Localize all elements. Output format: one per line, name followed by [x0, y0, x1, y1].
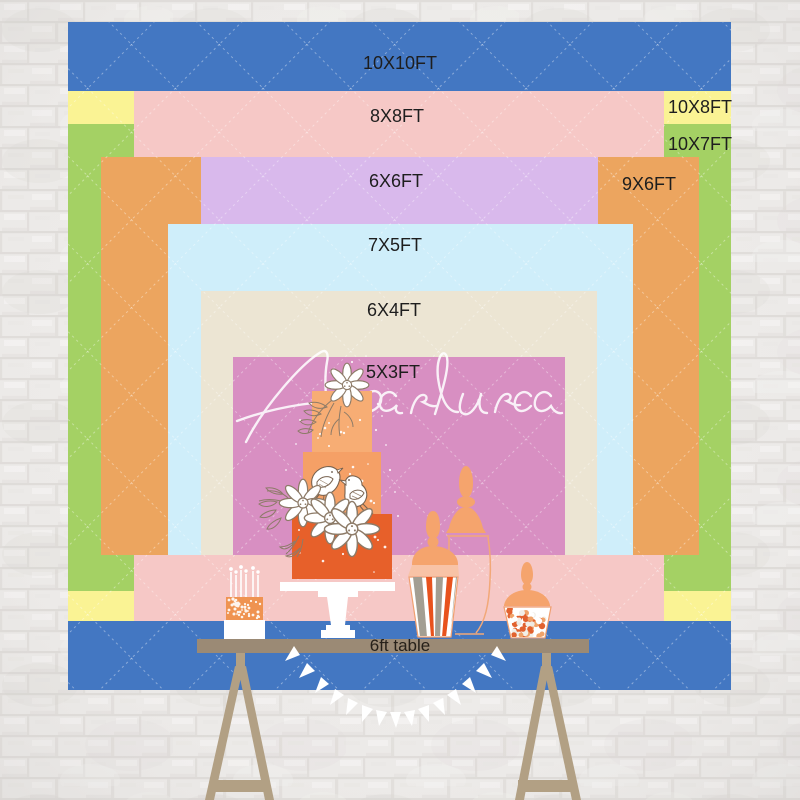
svg-text:6X4FT: 6X4FT [367, 300, 421, 320]
svg-text:6ft table: 6ft table [370, 636, 431, 655]
svg-text:7X5FT: 7X5FT [368, 235, 422, 255]
svg-text:10X8FT: 10X8FT [668, 97, 732, 117]
svg-text:10X10FT: 10X10FT [363, 53, 437, 73]
svg-text:6X6FT: 6X6FT [369, 171, 423, 191]
svg-text:5X3FT: 5X3FT [366, 362, 420, 382]
svg-text:9X6FT: 9X6FT [622, 174, 676, 194]
svg-text:10X7FT: 10X7FT [668, 134, 732, 154]
svg-text:8X8FT: 8X8FT [370, 106, 424, 126]
